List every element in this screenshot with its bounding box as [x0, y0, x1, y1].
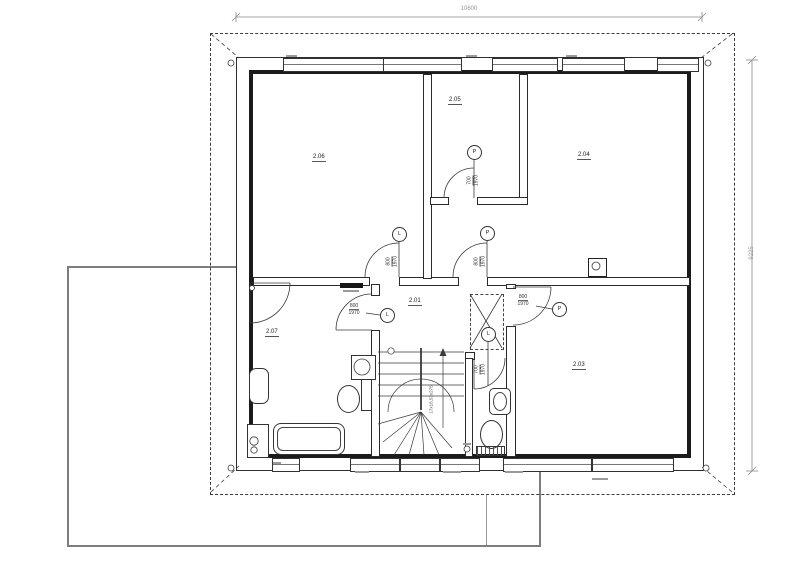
- toilet-bowl: [337, 385, 360, 413]
- room-label-204: 2.04: [577, 152, 591, 160]
- window-glazing-line: [384, 64, 461, 65]
- wall-bath-east-upper: [371, 284, 380, 296]
- window: [492, 58, 558, 72]
- micro-label: [273, 462, 281, 464]
- wall-bath-east-lower: [371, 330, 380, 457]
- wall-r205-east: [519, 74, 528, 199]
- door-height: 1970: [474, 175, 480, 186]
- micro-label: [343, 290, 359, 292]
- wc-radiator: [476, 446, 505, 456]
- door-size-label: 700 1970: [467, 168, 480, 194]
- dimension-top: 10600: [443, 6, 495, 12]
- wall-hall-north-right: [487, 277, 690, 286]
- door-swing-marker: L: [380, 308, 395, 323]
- window-glazing-line: [284, 64, 383, 65]
- wall-r205-south-right: [477, 197, 528, 205]
- door-size-label: 800 1970: [474, 249, 487, 275]
- door-size-label: 800 1970: [343, 303, 365, 316]
- window-glazing-line: [563, 64, 624, 65]
- window-glazing-line: [658, 64, 698, 65]
- window: [592, 458, 674, 472]
- bathtub-inner: [277, 427, 341, 451]
- door-width: 800: [386, 256, 393, 266]
- wall-r205-south-left: [430, 197, 449, 205]
- floor-plan-drawing: 2.01 2.03 2.04 2.05 2.06 2.07 800 1970 8…: [0, 0, 800, 565]
- window: [383, 58, 462, 72]
- door-height: 1970: [481, 256, 487, 267]
- micro-label: [466, 55, 477, 57]
- wall-r203-west-stub: [506, 284, 516, 289]
- flue-box: [588, 258, 607, 277]
- door-size-label: 700 1970: [474, 357, 487, 383]
- stair-annotation: 17x18,53x275: [429, 371, 436, 429]
- door-swing-marker: P: [467, 145, 482, 160]
- room-label-201: 2.01: [408, 298, 422, 306]
- door-swing-marker: L: [392, 227, 407, 242]
- room-label-206: 2.06: [312, 154, 326, 162]
- window-glazing-line: [441, 464, 479, 465]
- bathtub: [273, 423, 345, 455]
- window: [657, 58, 699, 72]
- terrace-divider-line: [486, 495, 487, 545]
- wc-washbasin-bowl: [493, 392, 507, 411]
- door-swing-marker: P: [552, 302, 567, 317]
- micro-label: [286, 55, 297, 57]
- micro-label: [592, 478, 608, 480]
- washbasin-square: [351, 355, 376, 380]
- door-height: 1970: [348, 310, 359, 316]
- window-glazing-line: [273, 464, 299, 465]
- wc-washbasin: [489, 388, 511, 415]
- wall-r206-east: [423, 74, 432, 279]
- door-width: 700: [467, 175, 474, 185]
- dimension-right: 9225: [749, 238, 757, 268]
- micro-label: [463, 443, 471, 445]
- toilet-tank: [361, 379, 372, 411]
- micro-label: [355, 471, 369, 473]
- window-glazing-line: [504, 464, 591, 465]
- door-size-label: 800 1970: [512, 294, 534, 307]
- door-width: 800: [349, 303, 359, 310]
- window: [272, 458, 300, 472]
- room-label-205: 2.05: [448, 97, 462, 105]
- window: [400, 458, 440, 472]
- door-width: 800: [474, 256, 481, 266]
- door-swing-marker: P: [480, 226, 495, 241]
- door-height: 1970: [481, 364, 487, 375]
- micro-label: [566, 55, 577, 57]
- micro-label: [443, 471, 461, 473]
- micro-label: [505, 471, 523, 473]
- window-glazing-line: [593, 464, 673, 465]
- room-label-203: 2.03: [572, 362, 586, 370]
- window-glazing-line: [493, 64, 557, 65]
- window: [283, 58, 384, 72]
- window: [440, 458, 480, 472]
- cabinet: [247, 424, 269, 458]
- door-swing-marker: L: [481, 327, 496, 342]
- wc-toilet-bowl: [480, 420, 503, 449]
- door-width: 700: [474, 364, 481, 374]
- window: [350, 458, 400, 472]
- wall-vent: [340, 283, 363, 288]
- door-height: 1970: [393, 256, 399, 267]
- window-glazing-line: [401, 464, 439, 465]
- washbasin: [249, 368, 269, 404]
- door-height: 1970: [517, 301, 528, 307]
- window: [503, 458, 592, 472]
- window: [562, 58, 625, 72]
- room-label-207: 2.07: [265, 329, 279, 337]
- door-width: 800: [518, 294, 528, 301]
- window-glazing-line: [351, 464, 399, 465]
- door-size-label: 800 1970: [386, 249, 399, 275]
